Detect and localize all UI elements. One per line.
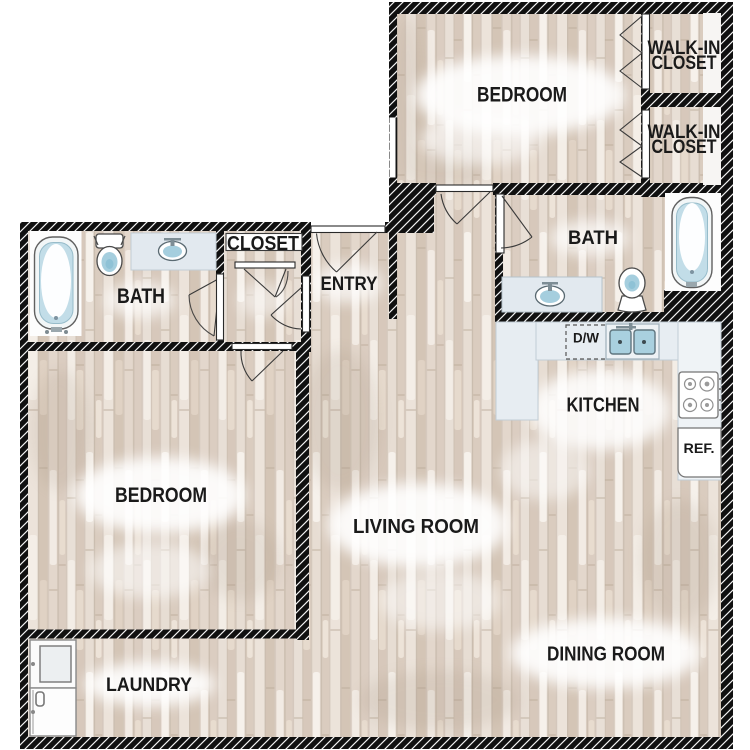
svg-text:BEDROOM: BEDROOM	[477, 84, 567, 107]
svg-text:DINING ROOM: DINING ROOM	[547, 644, 665, 666]
svg-text:KITCHEN: KITCHEN	[567, 395, 640, 417]
svg-text:LIVING ROOM: LIVING ROOM	[353, 516, 479, 538]
svg-text:REF.: REF.	[684, 440, 715, 456]
svg-text:CLOSET: CLOSET	[652, 137, 717, 158]
svg-text:BATH: BATH	[568, 228, 618, 249]
svg-text:D/W: D/W	[573, 330, 600, 346]
svg-text:CLOSET: CLOSET	[652, 53, 717, 74]
svg-text:ENTRY: ENTRY	[321, 274, 378, 295]
svg-text:CLOSET: CLOSET	[227, 233, 299, 255]
svg-text:BATH: BATH	[117, 285, 165, 308]
svg-text:BEDROOM: BEDROOM	[115, 484, 207, 507]
svg-text:LAUNDRY: LAUNDRY	[106, 674, 192, 696]
